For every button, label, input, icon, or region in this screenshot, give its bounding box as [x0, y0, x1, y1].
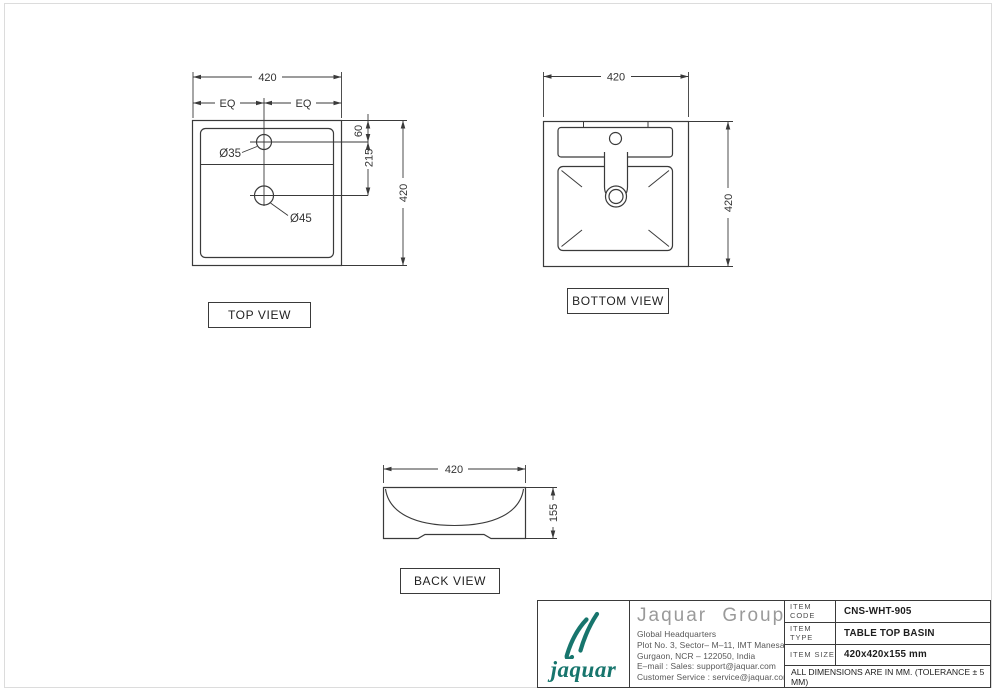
address-line: Gurgaon, NCR – 122050, India [637, 651, 780, 662]
item-type-value: TABLE TOP BASIN [836, 623, 990, 644]
jaquar-logo-wordmark: jaquar [551, 657, 617, 683]
item-code-value: CNS-WHT-905 [836, 601, 990, 622]
item-row-size: ITEM SIZE 420x420x155 mm [785, 645, 990, 667]
company-name: Jaquar Group [637, 604, 780, 627]
item-row-type: ITEM TYPE TABLE TOP BASIN [785, 623, 990, 645]
bottom-view-ledge-ticks [584, 122, 649, 128]
address-line: Customer Service : service@jaquar.com [637, 672, 780, 683]
item-size-label: ITEM SIZE [785, 645, 836, 666]
basin-technical-drawing: 420 EQ EQ 60 215 420 Ø35 Ø45 [0, 0, 1000, 692]
top-dim-height: 420 [398, 184, 410, 202]
bottom-view-title: BOTTOM VIEW [567, 288, 669, 314]
drawing-sheet: 420 EQ EQ 60 215 420 Ø35 Ø45 [0, 0, 1000, 692]
bottom-faucet-hole [610, 133, 622, 145]
company-info-cell: Jaquar Group Global Headquarters Plot No… [630, 601, 785, 687]
top-dim-faucet-offset: 60 [353, 125, 365, 137]
back-dim-height: 155 [548, 504, 560, 522]
bottom-dim-height: 420 [723, 194, 735, 212]
top-dim-drain-offset: 215 [364, 149, 376, 167]
top-view-title: TOP VIEW [208, 302, 311, 328]
bottom-dim-width: 420 [607, 72, 625, 84]
back-dim-width: 420 [445, 464, 463, 476]
logo-cell: jaquar [538, 601, 630, 687]
back-view-dimension-lines [384, 465, 558, 539]
item-type-label: ITEM TYPE [785, 623, 836, 644]
tolerance-note-row: ALL DIMENSIONS ARE IN MM. (TOLERANCE ± 5… [785, 666, 990, 687]
top-dim-eq-right: EQ [296, 98, 312, 110]
item-code-label: ITEM CODE [785, 601, 836, 622]
faucet-hole-label: Ø35 [219, 148, 241, 160]
address-line: E–mail : Sales: support@jaquar.com [637, 661, 780, 672]
drain-hole-label: Ø45 [290, 213, 312, 225]
address-line: Plot No. 3, Sector– M–11, IMT Manesar [637, 640, 780, 651]
jaquar-logo-icon [539, 605, 629, 659]
top-view-drawing: 420 EQ EQ 60 215 420 Ø35 Ø45 [193, 72, 411, 266]
top-dim-eq-left: EQ [220, 98, 236, 110]
back-view-bowl-curve [386, 489, 524, 526]
item-size-value: 420x420x155 mm [836, 645, 990, 666]
bottom-drain-inner [609, 190, 623, 204]
tolerance-note: ALL DIMENSIONS ARE IN MM. (TOLERANCE ± 5… [785, 666, 990, 687]
bottom-view-dimension-lines [544, 72, 734, 267]
back-view-outline [384, 488, 526, 539]
top-dim-width: 420 [258, 72, 276, 84]
address-line: Global Headquarters [637, 629, 780, 640]
item-table: ITEM CODE CNS-WHT-905 ITEM TYPE TABLE TO… [785, 601, 990, 687]
item-row-code: ITEM CODE CNS-WHT-905 [785, 601, 990, 623]
bottom-view-drawing: 420 420 [544, 72, 736, 267]
back-view-drawing: 420 155 [384, 464, 561, 539]
back-view-title: BACK VIEW [400, 568, 500, 594]
title-block: jaquar Jaquar Group Global Headquarters … [537, 600, 991, 688]
